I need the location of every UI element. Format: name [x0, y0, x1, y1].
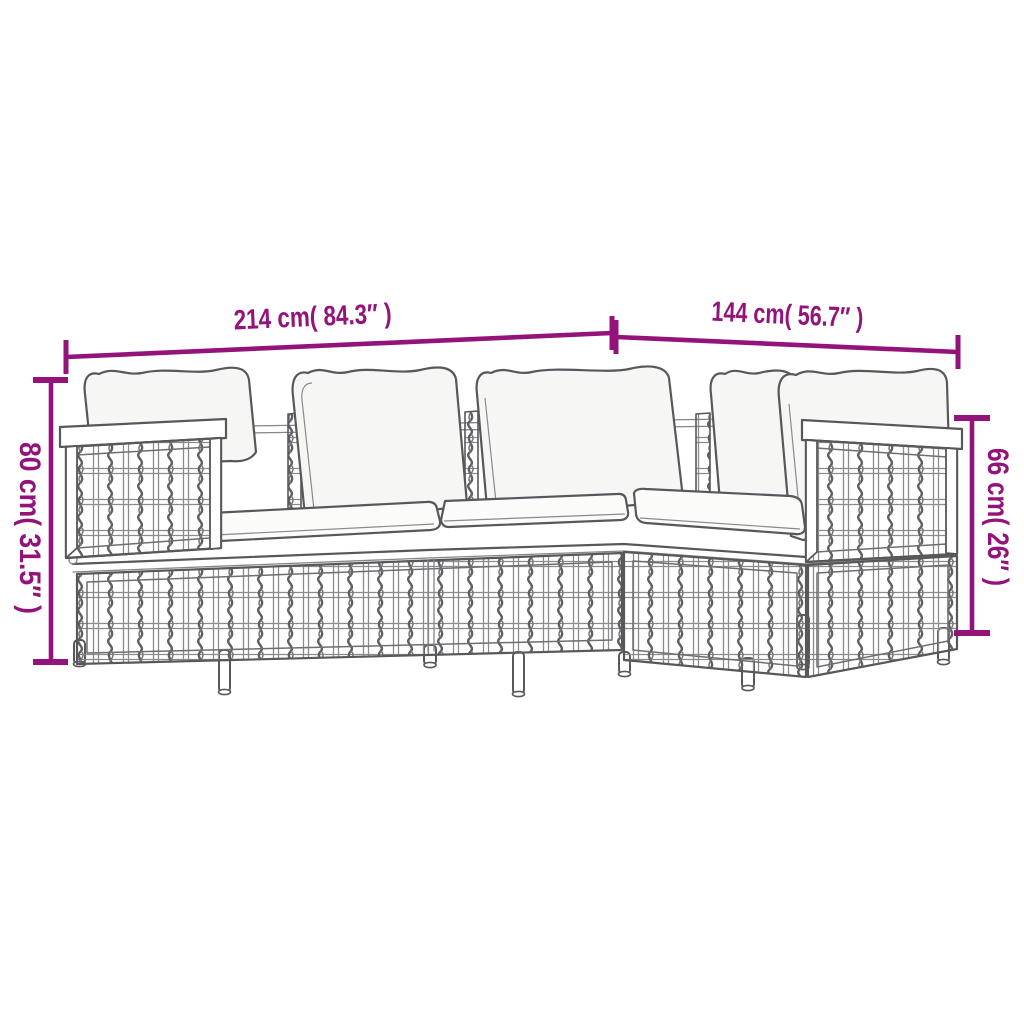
dim-right-height: 66 cm( 26″ )	[954, 418, 1014, 633]
garden-sofa-drawing	[60, 366, 962, 696]
back-cushion	[477, 366, 683, 509]
dim-back-width: 214 cm( 84.3″ )	[66, 298, 612, 374]
dimension-label: 214 cm( 84.3″ )	[233, 298, 392, 336]
back-post	[696, 413, 710, 502]
dim-side-width: 144 cm( 56.7″ )	[616, 296, 958, 369]
dimension-line	[616, 337, 958, 352]
dimension-label: 144 cm( 56.7″ )	[711, 296, 864, 334]
dimension-line	[66, 333, 612, 357]
leg	[513, 652, 524, 694]
dimension-label: 66 cm( 26″ )	[981, 448, 1014, 586]
base-weave-panel	[808, 556, 957, 677]
dimension-label: 80 cm( 31.5″ )	[13, 442, 46, 614]
dimension-diagram: 214 cm( 84.3″ ) 144 cm( 56.7″ ) 80 cm( 3…	[0, 0, 1024, 1024]
left-arm-panel	[60, 419, 226, 558]
base-weave-panel	[77, 553, 622, 664]
dim-left-height: 80 cm( 31.5″ )	[13, 380, 68, 662]
right-arm-panel	[802, 420, 962, 562]
back-cushion	[293, 367, 467, 516]
sofa-dimension-illustration: 214 cm( 84.3″ ) 144 cm( 56.7″ ) 80 cm( 3…	[0, 0, 1024, 1024]
